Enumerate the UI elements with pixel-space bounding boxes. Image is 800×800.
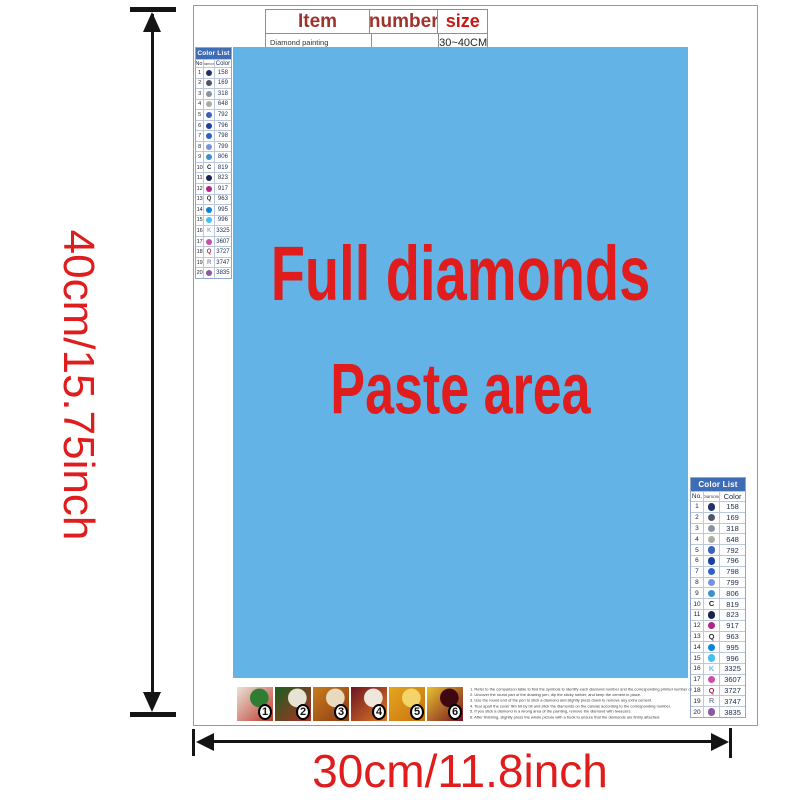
color-list-column-label: Diamond — [704, 492, 720, 501]
color-row-number: 5 — [196, 110, 204, 120]
diamond-color-dot — [206, 123, 212, 129]
width-arrow-right-cap — [729, 728, 732, 758]
color-row-number: 13 — [691, 632, 704, 642]
color-row-number: 13 — [196, 195, 204, 205]
diamond-symbol: R — [204, 258, 215, 268]
dmc-color-code: 3835 — [720, 707, 745, 717]
dmc-color-code: 819 — [215, 163, 231, 173]
diamond-color-dot — [708, 676, 716, 684]
color-row-number: 1 — [196, 68, 204, 78]
diamond-symbol — [704, 567, 720, 577]
diamond-symbol: Q — [704, 686, 720, 696]
dmc-color-code: 823 — [215, 173, 231, 183]
diamond-symbol-letter: K — [207, 228, 211, 234]
diamond-symbol: K — [704, 664, 720, 674]
diamond-symbol — [204, 205, 215, 215]
dmc-color-code: 799 — [215, 142, 231, 152]
color-list-row: 12917 — [691, 620, 745, 631]
diamond-color-dot — [708, 708, 716, 716]
diamond-symbol — [704, 610, 720, 620]
paste-area-title-line1: Full diamonds — [271, 228, 651, 318]
color-row-number: 9 — [691, 588, 704, 598]
dmc-color-code: 648 — [215, 100, 231, 110]
diamond-symbol-letter: R — [709, 697, 714, 705]
dmc-color-code: 169 — [720, 513, 745, 523]
step-thumbnail: 1 — [236, 686, 274, 722]
dmc-color-code: 792 — [720, 545, 745, 555]
dmc-color-code: 3325 — [215, 226, 231, 236]
color-row-number: 10 — [691, 599, 704, 609]
dmc-color-code: 917 — [720, 621, 745, 631]
diamond-symbol — [704, 642, 720, 652]
header-size: size — [438, 10, 487, 33]
height-dimension-label: 40cm/15.75inch — [53, 230, 103, 541]
width-dimension-label: 30cm/11.8inch — [312, 744, 608, 798]
color-row-number: 3 — [691, 524, 704, 534]
diamond-color-dot — [708, 514, 716, 522]
diamond-color-dot — [708, 579, 716, 587]
diamond-symbol — [704, 556, 720, 566]
diamond-symbol — [704, 653, 720, 663]
paste-area-title-line2: Paste area — [330, 349, 590, 432]
color-row-number: 14 — [196, 205, 204, 215]
diamond-symbol: Q — [204, 247, 215, 257]
dmc-color-code: 3607 — [720, 675, 745, 685]
color-row-number: 3 — [196, 89, 204, 99]
diamond-color-dot — [206, 101, 212, 107]
diamond-color-dot — [708, 525, 716, 533]
diamond-color-dot — [206, 91, 212, 97]
color-list-column-label: Color — [720, 492, 745, 501]
dmc-color-code: 963 — [215, 195, 231, 205]
diamond-symbol — [204, 110, 215, 120]
color-list-row: 2169 — [196, 78, 231, 89]
diamond-symbol — [204, 142, 215, 152]
dmc-color-code: 996 — [720, 653, 745, 663]
color-list-row: 19R3747 — [691, 695, 745, 706]
color-row-number: 11 — [196, 173, 204, 183]
step-number-badge: 4 — [372, 704, 386, 720]
dmc-color-code: 648 — [720, 534, 745, 544]
dmc-color-code: 823 — [720, 610, 745, 620]
dmc-color-code: 799 — [720, 578, 745, 588]
header-number: number — [370, 10, 438, 33]
dmc-color-code: 3727 — [720, 686, 745, 696]
color-row-number: 6 — [196, 121, 204, 131]
dmc-color-code: 158 — [720, 502, 745, 512]
color-row-number: 19 — [691, 696, 704, 706]
diamond-color-dot — [206, 70, 212, 76]
color-list-row: 7798 — [196, 130, 231, 141]
dmc-color-code: 158 — [215, 68, 231, 78]
dmc-color-code: 798 — [720, 567, 745, 577]
diamond-color-dot — [708, 622, 716, 630]
diamond-symbol — [704, 588, 720, 598]
diamond-symbol: C — [704, 599, 720, 609]
step-thumbnail: 2 — [274, 686, 312, 722]
color-row-number: 20 — [691, 707, 704, 717]
color-row-number: 2 — [691, 513, 704, 523]
instruction-line: 1. Refer to the comparison table to find… — [470, 687, 692, 693]
diamond-color-dot — [708, 611, 716, 619]
dmc-color-code: 3727 — [215, 247, 231, 257]
color-list-row: 9806 — [691, 587, 745, 598]
diamond-symbol — [704, 502, 720, 512]
color-row-number: 10 — [196, 163, 204, 173]
color-list-row: 16K3325 — [691, 663, 745, 674]
color-list-row: 18Q3727 — [691, 685, 745, 696]
step-number-badge: 2 — [296, 704, 310, 720]
dmc-color-code: 3747 — [720, 696, 745, 706]
width-arrow-right-arrowhead — [711, 733, 729, 751]
color-list-row: 15996 — [691, 652, 745, 663]
color-list-row: 10C819 — [691, 598, 745, 609]
dmc-color-code: 169 — [215, 79, 231, 89]
diamond-color-dot — [708, 644, 716, 652]
color-list-row: 3318 — [691, 523, 745, 534]
diamond-symbol — [204, 121, 215, 131]
diamond-color-dot — [206, 207, 212, 213]
diamond-color-dot — [206, 175, 212, 181]
diamond-symbol: R — [704, 696, 720, 706]
step-thumbnail: 5 — [388, 686, 426, 722]
color-row-number: 4 — [196, 100, 204, 110]
color-row-number: 20 — [196, 268, 204, 278]
diamond-color-dot — [708, 590, 716, 598]
dmc-color-code: 3325 — [720, 664, 745, 674]
color-row-number: 14 — [691, 642, 704, 652]
diamond-color-dot — [708, 503, 716, 511]
color-list-row: 13Q963 — [691, 631, 745, 642]
diamond-symbol-letter: Q — [207, 196, 212, 202]
dmc-color-code: 963 — [720, 632, 745, 642]
dmc-color-code: 792 — [215, 110, 231, 120]
color-row-number: 1 — [691, 502, 704, 512]
color-row-number: 8 — [691, 578, 704, 588]
color-list-row: 10C819 — [196, 162, 231, 173]
color-row-number: 6 — [691, 556, 704, 566]
color-list-row: 6796 — [196, 120, 231, 131]
color-list-row: 8799 — [691, 577, 745, 588]
diamond-color-dot — [708, 654, 716, 662]
color-list-row: 4648 — [196, 99, 231, 110]
height-arrow-bottom-cap — [130, 712, 176, 717]
color-row-number: 7 — [196, 131, 204, 141]
color-list-row: 5792 — [691, 544, 745, 555]
step-thumbnail: 4 — [350, 686, 388, 722]
color-list-right: Color ListNo.DiamondColor115821693318464… — [690, 477, 746, 718]
diamond-symbol: Q — [704, 632, 720, 642]
color-list-row: 1158 — [196, 67, 231, 78]
dmc-color-code: 796 — [215, 121, 231, 131]
diamond-symbol: Q — [204, 195, 215, 205]
diamond-symbol-letter: Q — [709, 633, 715, 641]
diamond-color-dot — [206, 186, 212, 192]
color-list-row: 2169 — [691, 512, 745, 523]
color-row-number: 17 — [691, 675, 704, 685]
color-row-number: 18 — [196, 247, 204, 257]
diamond-color-dot — [206, 239, 212, 245]
color-row-number: 16 — [691, 664, 704, 674]
header-item: Item — [266, 10, 370, 33]
diamond-color-dot — [708, 536, 716, 544]
width-arrow-left-cap — [192, 729, 195, 756]
color-list-column-label: Diamond — [204, 60, 215, 67]
diamond-symbol: K — [204, 226, 215, 236]
color-list-row: 13Q963 — [196, 194, 231, 205]
step-thumbnail: 3 — [312, 686, 350, 722]
height-arrow-line — [151, 14, 154, 700]
color-list-left: Color ListNo.DiamondColor115821693318464… — [195, 47, 232, 279]
diamond-symbol-letter: K — [709, 665, 714, 673]
diamond-color-dot — [708, 546, 716, 554]
diamond-color-dot — [206, 217, 212, 223]
diamond-symbol — [204, 216, 215, 226]
diamond-symbol — [704, 621, 720, 631]
color-list-row: 173607 — [196, 236, 231, 247]
diamond-color-dot — [206, 154, 212, 160]
step-number-badge: 1 — [258, 704, 272, 720]
diamond-symbol — [704, 707, 720, 717]
dmc-color-code: 798 — [215, 131, 231, 141]
diamond-symbol-letter: C — [207, 165, 211, 171]
diamond-color-dot — [708, 568, 716, 576]
dmc-color-code: 819 — [720, 599, 745, 609]
dmc-color-code: 796 — [720, 556, 745, 566]
color-list-title: Color List — [691, 478, 745, 491]
color-list-row: 7798 — [691, 566, 745, 577]
instruction-text: 1. Refer to the comparison table to find… — [470, 687, 692, 721]
color-row-number: 11 — [691, 610, 704, 620]
diamond-symbol — [204, 131, 215, 141]
dmc-color-code: 917 — [215, 184, 231, 194]
color-row-number: 7 — [691, 567, 704, 577]
item-table-header-row: Item number size — [266, 10, 487, 34]
color-row-number: 12 — [196, 184, 204, 194]
diamond-symbol — [704, 675, 720, 685]
dmc-color-code: 318 — [720, 524, 745, 534]
color-row-number: 8 — [196, 142, 204, 152]
color-row-number: 5 — [691, 545, 704, 555]
color-list-row: 14995 — [691, 641, 745, 652]
dmc-color-code: 995 — [215, 205, 231, 215]
diamond-symbol — [204, 152, 215, 162]
color-list-row: 5792 — [196, 109, 231, 120]
diamond-symbol — [204, 268, 215, 278]
color-row-number: 9 — [196, 152, 204, 162]
height-arrow-down-arrowhead — [143, 692, 161, 712]
color-list-column-label: No. — [196, 60, 204, 67]
diamond-symbol-letter: R — [207, 260, 211, 266]
color-row-number: 18 — [691, 686, 704, 696]
diamond-color-dot — [206, 80, 212, 86]
color-list-row: 11823 — [196, 172, 231, 183]
step-number-badge: 3 — [334, 704, 348, 720]
dmc-color-code: 3607 — [215, 237, 231, 247]
color-list-row: 19R3747 — [196, 257, 231, 268]
color-row-number: 16 — [196, 226, 204, 236]
diamond-symbol — [704, 513, 720, 523]
dmc-color-code: 3835 — [215, 268, 231, 278]
dmc-color-code: 318 — [215, 89, 231, 99]
diamond-color-dot — [708, 557, 716, 565]
color-list-column-label: No. — [691, 492, 704, 501]
diamond-symbol-letter: Q — [709, 687, 715, 695]
color-row-number: 15 — [691, 653, 704, 663]
step-thumbnails: 123456 — [236, 686, 464, 722]
step-number-badge: 5 — [410, 704, 424, 720]
dmc-color-code: 806 — [215, 152, 231, 162]
dmc-color-code: 806 — [720, 588, 745, 598]
color-list-row: 203835 — [196, 267, 231, 278]
diamond-symbol — [204, 68, 215, 78]
color-row-number: 15 — [196, 216, 204, 226]
diamond-symbol-letter: C — [709, 600, 714, 608]
diamond-color-dot — [206, 133, 212, 139]
color-list-row: 11823 — [691, 609, 745, 620]
diamond-symbol — [204, 237, 215, 247]
diamond-symbol — [204, 89, 215, 99]
diamond-symbol-letter: Q — [207, 249, 212, 255]
diamond-color-dot — [206, 144, 212, 150]
dmc-color-code: 995 — [720, 642, 745, 652]
color-list-columns: No.DiamondColor — [691, 491, 745, 501]
color-row-number: 17 — [196, 237, 204, 247]
dmc-color-code: 996 — [215, 216, 231, 226]
dmc-color-code: 3747 — [215, 258, 231, 268]
product-infographic: Item number size Diamond painting 30~40C… — [0, 0, 800, 800]
color-list-row: 6796 — [691, 555, 745, 566]
step-thumbnail: 6 — [426, 686, 464, 722]
step-number-badge: 6 — [448, 704, 462, 720]
diamond-color-dot — [206, 270, 212, 276]
color-list-row: 15996 — [196, 215, 231, 226]
color-row-number: 4 — [691, 534, 704, 544]
color-list-row: 14995 — [196, 204, 231, 215]
color-list-row: 1158 — [691, 501, 745, 512]
color-row-number: 19 — [196, 258, 204, 268]
width-arrow-line — [212, 740, 712, 743]
color-list-row: 8799 — [196, 141, 231, 152]
color-row-number: 12 — [691, 621, 704, 631]
color-list-row: 203835 — [691, 706, 745, 717]
paste-area: Full diamonds Paste area — [233, 47, 688, 678]
diamond-symbol — [704, 534, 720, 544]
diamond-symbol — [204, 184, 215, 194]
diamond-symbol — [204, 173, 215, 183]
color-list-row: 18Q3727 — [196, 246, 231, 257]
color-list-row: 173607 — [691, 674, 745, 685]
color-list-row: 3318 — [196, 88, 231, 99]
color-list-columns: No.DiamondColor — [196, 59, 231, 67]
color-list-row: 12917 — [196, 183, 231, 194]
color-list-column-label: Color — [215, 60, 231, 67]
color-row-number: 2 — [196, 79, 204, 89]
color-list-row: 4648 — [691, 533, 745, 544]
color-list-row: 9806 — [196, 151, 231, 162]
diamond-color-dot — [206, 112, 212, 118]
instruction-line: 6. After finishing, slightly press the w… — [470, 715, 692, 721]
item-info-table: Item number size Diamond painting 30~40C… — [265, 9, 488, 52]
diamond-symbol — [704, 578, 720, 588]
diamond-symbol — [704, 524, 720, 534]
diamond-symbol: C — [204, 163, 215, 173]
diamond-symbol — [704, 545, 720, 555]
color-list-title: Color List — [196, 48, 231, 59]
diamond-symbol — [204, 100, 215, 110]
diamond-symbol — [204, 79, 215, 89]
color-list-row: 16K3325 — [196, 225, 231, 236]
